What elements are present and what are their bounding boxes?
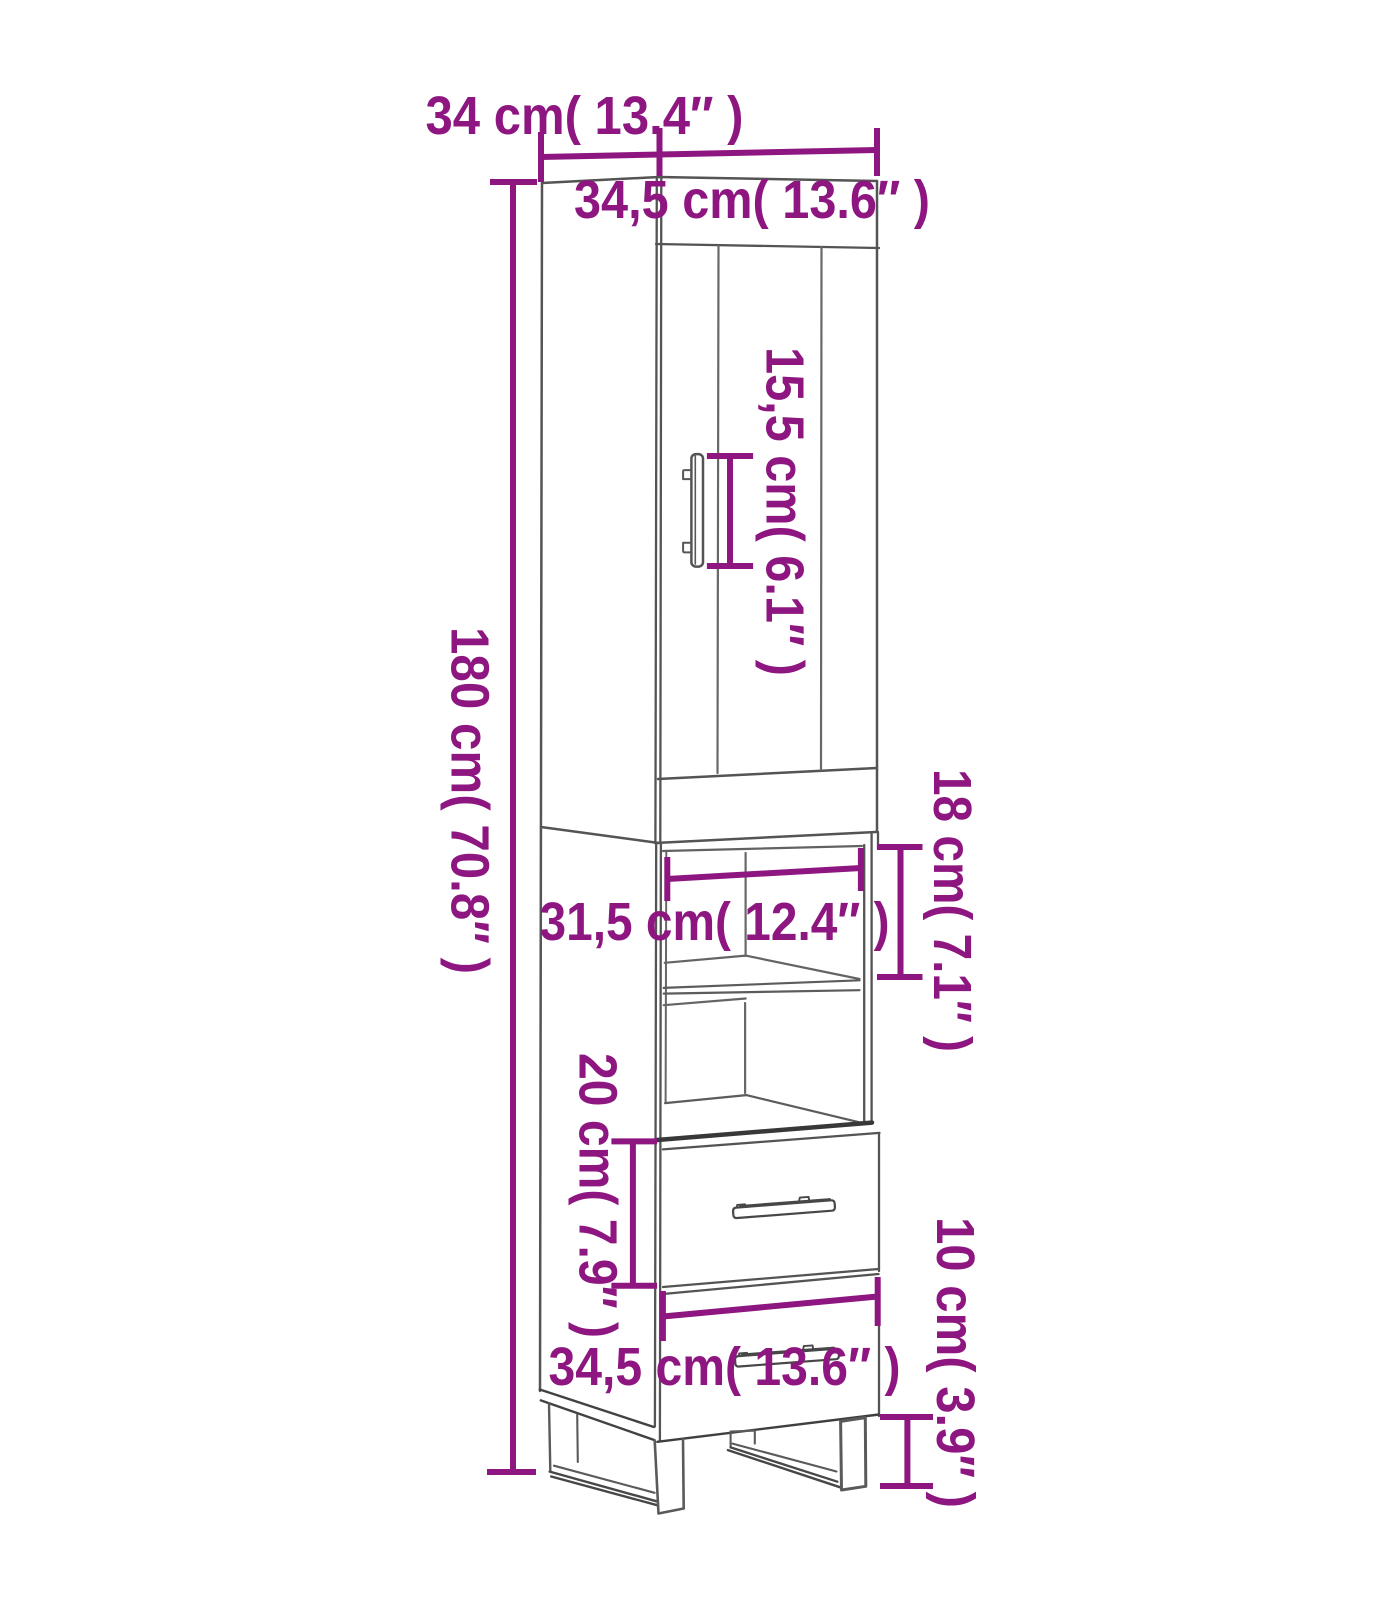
svg-text:18 cm( 7.1″ ): 18 cm( 7.1″ ) bbox=[922, 769, 982, 1052]
svg-text:31,5 cm( 12.4″ ): 31,5 cm( 12.4″ ) bbox=[540, 892, 890, 952]
svg-text:15,5 cm( 6.1″ ): 15,5 cm( 6.1″ ) bbox=[755, 347, 815, 676]
svg-text:10 cm( 3.9″ ): 10 cm( 3.9″ ) bbox=[925, 1217, 985, 1508]
svg-text:34,5 cm( 13.6″ ): 34,5 cm( 13.6″ ) bbox=[549, 1337, 901, 1397]
svg-text:34 cm( 13.4″ ): 34 cm( 13.4″ ) bbox=[426, 86, 744, 146]
svg-text:180 cm( 70.8″ ): 180 cm( 70.8″ ) bbox=[440, 627, 500, 974]
svg-text:34,5 cm( 13.6″ ): 34,5 cm( 13.6″ ) bbox=[574, 170, 930, 230]
svg-text:20 cm( 7.9″ ): 20 cm( 7.9″ ) bbox=[568, 1053, 628, 1338]
